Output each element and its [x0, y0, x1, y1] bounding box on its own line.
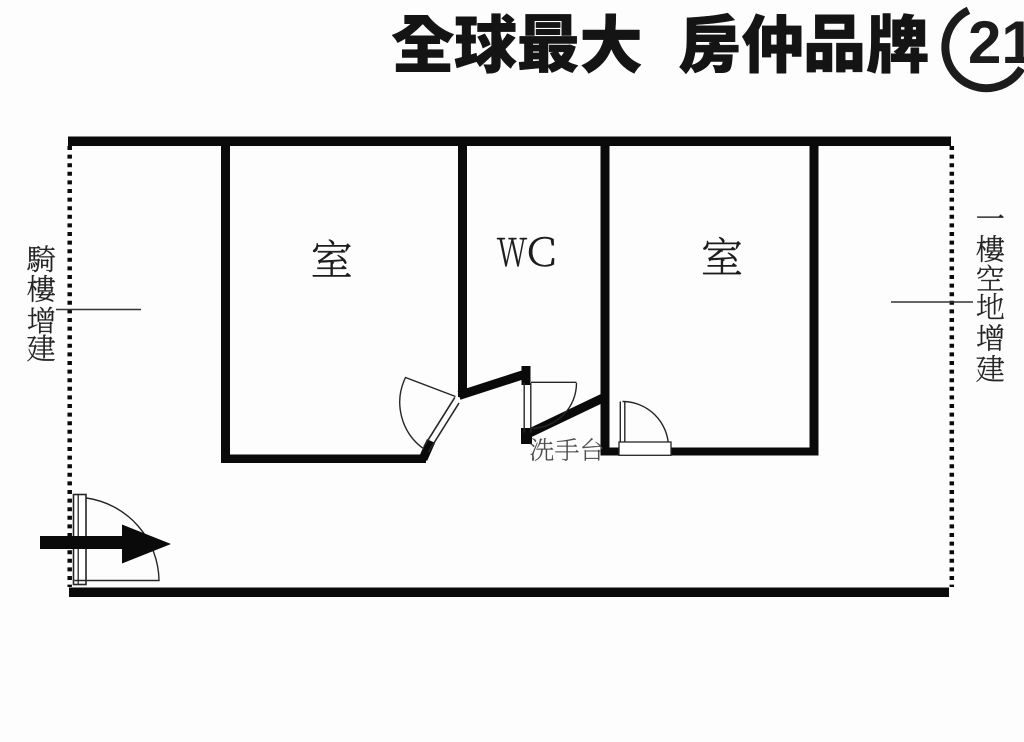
svg-text:21: 21: [968, 9, 1024, 76]
